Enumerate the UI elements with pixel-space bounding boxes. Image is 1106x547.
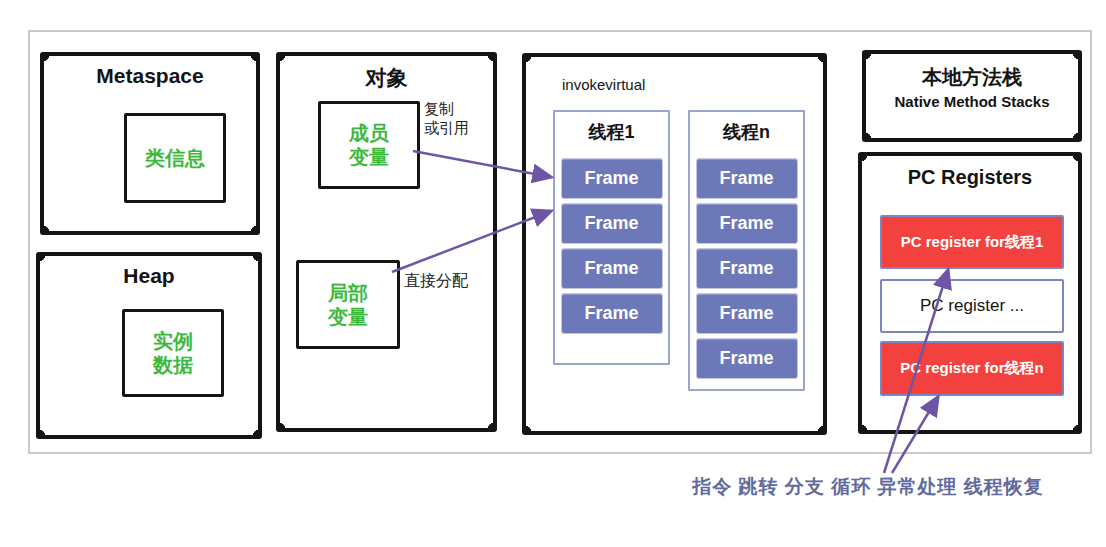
member-variables-line2: 变量 xyxy=(349,145,389,169)
direct-allocation-label: 直接分配 xyxy=(404,271,468,290)
native-method-stacks-box: 本地方法栈 Native Method Stacks xyxy=(862,50,1082,142)
object-title: 对象 xyxy=(280,64,493,92)
threadn-frames: Frame Frame Frame Frame Frame xyxy=(690,158,803,379)
thread1-title: 线程1 xyxy=(588,120,634,144)
stack-frame: Frame xyxy=(696,248,798,289)
local-variables-box: 局部 变量 xyxy=(296,260,400,349)
metaspace-box: Metaspace 类信息 xyxy=(40,52,260,235)
copy-or-reference-label: 复制 或引用 xyxy=(424,99,469,137)
stack-frame: Frame xyxy=(696,158,798,199)
native-method-stacks-title: 本地方法栈 xyxy=(866,64,1078,91)
stack-frame: Frame xyxy=(561,158,663,199)
native-method-stacks-subtitle: Native Method Stacks xyxy=(866,93,1078,110)
thread1-stack: 线程1 Frame Frame Frame Frame xyxy=(553,110,670,365)
pc-registers-title: PC Registers xyxy=(862,166,1078,189)
threadn-stack: 线程n Frame Frame Frame Frame Frame xyxy=(688,110,805,391)
stack-frame: Frame xyxy=(561,248,663,289)
jvm-memory-diagram: Metaspace 类信息 Heap 实例 数据 对象 成员 变量 局部 变量 … xyxy=(0,0,1106,547)
stack-frame: Frame xyxy=(696,338,798,379)
instance-data-box: 实例 数据 xyxy=(122,309,224,397)
pc-register-threadn: PC register for线程n xyxy=(880,341,1064,396)
stack-frame: Frame xyxy=(696,293,798,334)
pc-register-thread1: PC register for线程1 xyxy=(880,215,1064,269)
local-variables-line2: 变量 xyxy=(328,305,368,329)
invokevirtual-label: invokevirtual xyxy=(562,76,645,93)
instance-data-line1: 实例 xyxy=(153,329,193,353)
heap-title: Heap xyxy=(40,264,258,288)
metaspace-title: Metaspace xyxy=(44,64,256,88)
threadn-title: 线程n xyxy=(723,120,770,144)
class-info-box: 类信息 xyxy=(124,113,226,203)
pc-register-middle: PC register ... xyxy=(880,279,1064,333)
pc-registers-box: PC Registers PC register for线程1 PC regis… xyxy=(858,152,1082,434)
heap-box: Heap 实例 数据 xyxy=(36,252,262,439)
pc-register-usage-caption: 指令 跳转 分支 循环 异常处理 线程恢复 xyxy=(648,474,1088,500)
local-variables-line1: 局部 xyxy=(328,281,368,305)
member-variables-line1: 成员 xyxy=(349,121,389,145)
instance-data-line2: 数据 xyxy=(153,353,193,377)
stack-frame: Frame xyxy=(561,203,663,244)
stack-frame: Frame xyxy=(561,293,663,334)
class-info-label: 类信息 xyxy=(145,146,205,170)
member-variables-box: 成员 变量 xyxy=(318,101,420,189)
stack-frame: Frame xyxy=(696,203,798,244)
thread1-frames: Frame Frame Frame Frame xyxy=(555,158,668,334)
vm-stacks-box: invokevirtual 线程1 Frame Frame Frame Fram… xyxy=(522,53,827,435)
